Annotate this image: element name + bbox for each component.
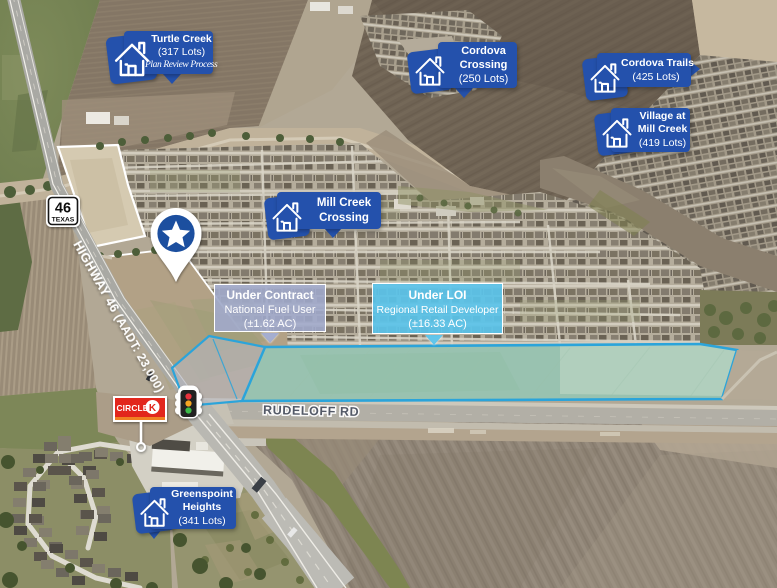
svg-text:TEXAS: TEXAS (52, 217, 75, 224)
svg-text:HIGHWAY 46 (AADT: 23,000): HIGHWAY 46 (AADT: 23,000) (70, 239, 167, 395)
svg-text:RUDELOFF RD: RUDELOFF RD (263, 403, 359, 419)
svg-text:CIRCLE: CIRCLE (116, 403, 148, 413)
svg-text:K: K (149, 403, 157, 414)
svg-text:46: 46 (55, 201, 71, 217)
